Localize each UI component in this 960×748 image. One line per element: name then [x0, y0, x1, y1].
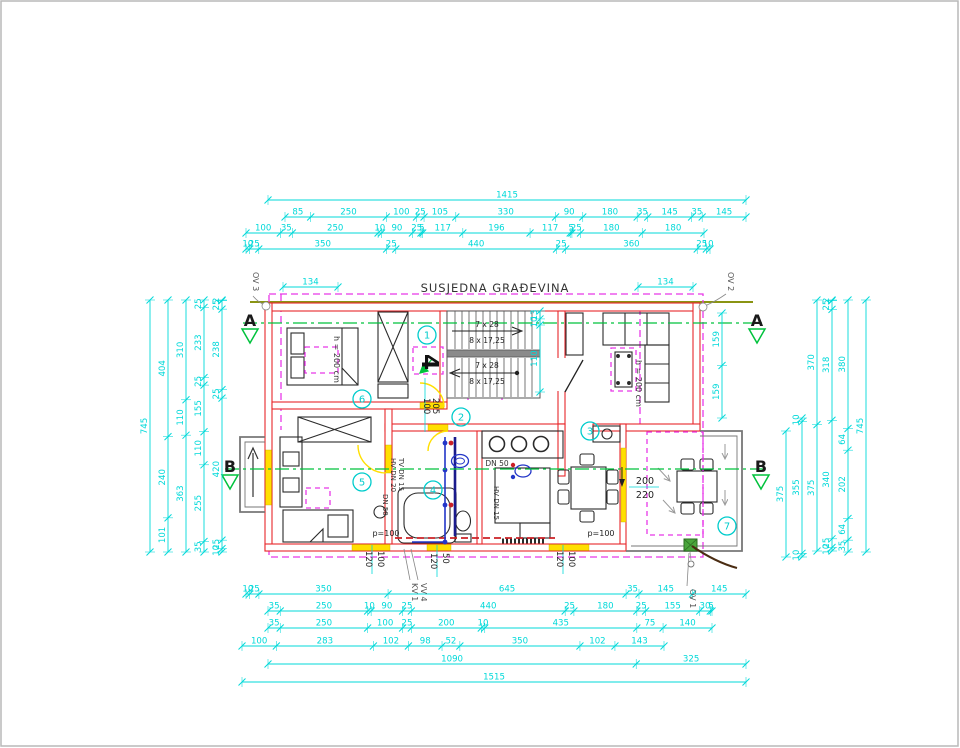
window1-width: 100 — [375, 551, 385, 567]
dim-label: 200 — [438, 619, 454, 629]
dim-label: 255 — [194, 495, 204, 511]
dim-label: 420 — [212, 461, 222, 477]
dim-label: 25 — [564, 602, 575, 612]
dim-label: 340 — [822, 471, 832, 487]
dim-chain-left-3: 310110363 — [176, 297, 191, 556]
dim-label: 102 — [383, 637, 399, 647]
window-right-width: 200 — [636, 476, 654, 487]
dim-label: 64 — [838, 434, 848, 445]
dim-chain-top-total: 1415 — [265, 191, 750, 206]
dim-label: 101 — [158, 527, 168, 543]
dim-label: 145 — [658, 585, 674, 595]
window3-height: 120 — [554, 551, 564, 567]
dim-label: 35 — [838, 541, 848, 552]
dim-label: 145 — [661, 208, 677, 218]
door-opening-living — [557, 358, 566, 391]
tv-cabinet — [566, 313, 583, 355]
dim-chain-top-row-2: 8525010025105330901803514535145 — [282, 208, 750, 223]
dim-chain-right-window: 159159 — [712, 310, 727, 422]
dim-label: 90 — [391, 224, 402, 234]
detail-marker-number: 4 — [416, 354, 442, 370]
room-number-2: 2 — [458, 413, 464, 424]
window-right-height: 220 — [636, 490, 654, 501]
door-leaf-living — [565, 360, 583, 392]
dim-label: 25 — [249, 240, 260, 250]
plumbing — [395, 437, 555, 544]
dim-label: 180 — [597, 602, 613, 612]
pipe-tv-dn15: TV DN 15 — [397, 457, 405, 491]
room-number-3: 3 — [587, 427, 593, 438]
dim-label: 404 — [158, 360, 168, 376]
dim-label: 25 — [212, 388, 222, 399]
dim-label: 75 — [644, 619, 655, 629]
kitchen-sink — [515, 465, 531, 477]
dim-label: 1415 — [496, 191, 518, 201]
room-number-1: 1 — [424, 331, 430, 342]
pipe-dn50-bath: DN 50 — [381, 494, 389, 516]
dim-label: 250 — [316, 619, 332, 629]
vent-label-ov3: OV 3 — [251, 272, 260, 291]
toilet — [456, 511, 471, 531]
dim-label: 330 — [497, 208, 513, 218]
rainwater-drain — [684, 539, 737, 568]
dim-label: 350 — [315, 240, 331, 250]
dim-chain-top-row-3: 100352501090255117196117525180180 — [243, 224, 708, 239]
dim-label: 233 — [194, 334, 204, 350]
dim-chain-right-2: 1035510 — [792, 414, 807, 560]
dim-chain-bottom-row-6: 1515 — [239, 673, 750, 688]
dim-label: 134 — [657, 278, 673, 288]
dim-label: 250 — [316, 602, 332, 612]
dim-chain-bottom-row-5: 1090325 — [265, 655, 750, 670]
window3-width: 100 — [566, 551, 576, 567]
dim-label: 140 — [679, 619, 695, 629]
vent-label-ov1: OV 1 — [688, 589, 697, 608]
door-dim-height: 205 — [430, 398, 440, 414]
dim-label: 90 — [381, 602, 392, 612]
height-note-right: h = 200 cm — [634, 360, 643, 407]
dim-chain-left-1: 745 — [140, 297, 155, 556]
section-marker-b-left: B — [224, 457, 236, 476]
dim-chain-right-3: 370375 — [807, 297, 822, 555]
bed — [287, 328, 358, 385]
dim-label: 196 — [488, 224, 504, 234]
dim-label: 85 — [292, 208, 303, 218]
dim-label: 98 — [420, 637, 431, 647]
dim-label: 159 — [712, 384, 722, 400]
room-number-5: 5 — [359, 478, 365, 489]
dim-chain-bottom-row-4: 1002831029852350102143 — [239, 637, 668, 652]
dim-chain-bottom-row-1: 102535064535145145 — [242, 585, 749, 600]
dim-chain-top-134-left: 134 — [280, 278, 342, 293]
terrace-table — [677, 459, 717, 514]
dim-label: 240 — [158, 469, 168, 485]
dim-label: 25 — [401, 602, 412, 612]
dim-label: 25 — [571, 224, 582, 234]
vent-label-vv4: VV 4 — [419, 583, 428, 602]
dim-label: 155 — [664, 602, 680, 612]
kitchen-counter — [482, 426, 620, 541]
stair-stringer — [447, 350, 540, 357]
height-note-left: h = 200 cm — [332, 336, 341, 383]
dim-label: 100 — [251, 637, 267, 647]
floor-plan-sheet: 1415852501002510533090180351453514510035… — [0, 0, 960, 748]
dim-label: 35 — [194, 541, 204, 552]
dim-label: 35 — [269, 602, 280, 612]
dim-label: 180 — [602, 208, 618, 218]
dim-label: 52 — [445, 637, 456, 647]
dim-label: 238 — [212, 341, 222, 357]
dim-label: 117 — [435, 224, 451, 234]
dim-label: 375 — [807, 480, 817, 496]
dim-label: 350 — [315, 585, 331, 595]
dim-chain-right-6: 745 — [856, 297, 871, 556]
dim-label: 180 — [665, 224, 681, 234]
dim-label: 1090 — [441, 655, 463, 665]
dim-chain-bottom-row-3: 35250100252001043575140 — [265, 619, 716, 634]
dim-chain-right-5: 380642026435 — [838, 297, 853, 556]
dim-label: 90 — [564, 208, 575, 218]
dim-label: 202 — [838, 476, 848, 492]
stair-up-run: 7 x 28 — [475, 320, 499, 329]
dim-chain-left-2: 404240101 — [158, 297, 173, 556]
dim-chain-top-row-4: 102535025440253602510 — [242, 240, 713, 255]
door-dim-width: 100 — [421, 398, 431, 414]
parapet-right: p=100 — [587, 529, 614, 538]
dim-label: 35 — [691, 208, 702, 218]
dim-label: 10 — [703, 240, 714, 250]
dim-label: 145 — [711, 585, 727, 595]
dim-label: 325 — [683, 655, 699, 665]
section-marker-b-right: B — [755, 457, 767, 476]
dim-label: 745 — [856, 418, 866, 434]
section-marker-a-left: A — [244, 311, 257, 330]
dim-label: 1515 — [483, 673, 505, 683]
pipe-hv-dn20: HV DN 20 — [389, 458, 397, 492]
dim-label: 25 — [401, 619, 412, 629]
dim-label: 360 — [623, 240, 639, 250]
dim-chain-bottom-row-2: 352501090254402518025155305 — [265, 602, 716, 617]
dim-label: 370 — [807, 354, 817, 370]
room-number-7: 7 — [724, 522, 730, 533]
dim-label: 435 — [553, 619, 569, 629]
stair-down-run: 7 x 28 — [475, 361, 499, 370]
dining-table — [558, 454, 618, 522]
dim-label: 25 — [212, 299, 222, 310]
dim-label: 64 — [838, 524, 848, 535]
dim-label: 10 — [530, 316, 540, 327]
dim-label: 10 — [364, 602, 375, 612]
dim-label: 35 — [627, 585, 638, 595]
dim-label: 100 — [393, 208, 409, 218]
section-marker-a-right-triangle — [749, 329, 765, 343]
coffee-table — [615, 352, 632, 387]
dim-label: 159 — [712, 331, 722, 347]
dim-label: 355 — [792, 479, 802, 495]
dim-label: 250 — [327, 224, 343, 234]
dim-label: 745 — [140, 418, 150, 434]
floor-plan-drawing: 1415852501002510533090180351453514510035… — [0, 0, 960, 748]
wardrobe-room5 — [298, 417, 371, 442]
vent-label-kv1: KV 1 — [410, 583, 419, 601]
dim-label: 100 — [255, 224, 271, 234]
entry-arrow — [248, 448, 258, 497]
dim-label: 25 — [386, 240, 397, 250]
cold-water-pipe — [412, 437, 445, 542]
dim-label: 35 — [281, 224, 292, 234]
parapet-left: p=100 — [372, 529, 399, 538]
dim-label: 35 — [637, 208, 648, 218]
dim-label: 10 — [478, 619, 489, 629]
section-marker-b-right-triangle — [753, 475, 769, 489]
dim-label: 375 — [776, 486, 786, 502]
room-number-6: 6 — [359, 395, 365, 406]
dim-chain-top-134-right: 134 — [635, 278, 697, 293]
dim-chain-right-4: 2253183402510 — [822, 297, 837, 555]
dim-label: 105 — [432, 208, 448, 218]
dim-label: 143 — [631, 637, 647, 647]
dim-label: 283 — [317, 637, 333, 647]
dim-label: 250 — [340, 208, 356, 218]
dimension-layer: 1415852501002510533090180351453514510035… — [140, 191, 871, 688]
vent-label-ov2: OV 2 — [726, 272, 735, 291]
dim-label: 25 — [822, 300, 832, 311]
dim-label: 110 — [194, 440, 204, 456]
dim-label: 10 — [374, 224, 385, 234]
dim-chain-right-1: 375 — [776, 428, 791, 561]
window2-width: 50 — [440, 553, 450, 564]
pipe-hv-dn15: HV DN 15 — [492, 486, 500, 520]
dim-chain-left-5: 225238254202510 — [212, 297, 227, 556]
dim-label: 350 — [512, 637, 528, 647]
dim-label: 155 — [194, 400, 204, 416]
dim-label: 440 — [468, 240, 484, 250]
room-number-4: 4 — [430, 486, 436, 497]
cabinet-room5 — [283, 510, 353, 542]
dim-label: 100 — [377, 619, 393, 629]
dim-label: 145 — [716, 208, 732, 218]
stair-up-rise: 8 x 17,25 — [469, 336, 505, 345]
pipe-dn50-kitchen: DN 50 — [485, 459, 509, 468]
dim-label: 102 — [589, 637, 605, 647]
section-marker-b-left-triangle — [222, 475, 238, 489]
section-marker-a-left-triangle — [242, 329, 258, 343]
dim-chain-left-4: 252332515511025535 — [194, 297, 209, 556]
dim-label: 35 — [269, 619, 280, 629]
dim-label: 363 — [176, 485, 186, 501]
downspout-curve — [692, 546, 737, 568]
dim-label: 310 — [176, 342, 186, 358]
stair-down-rise: 8 x 17,25 — [469, 377, 505, 386]
desk — [280, 437, 302, 507]
dim-label: 380 — [838, 356, 848, 372]
dim-label: 25 — [249, 585, 260, 595]
dim-label: 25 — [636, 602, 647, 612]
window1-height: 120 — [363, 551, 373, 567]
neighbour-building-label: SUSJEDNA GRAĐEVINA — [421, 281, 570, 295]
dim-label: 110 — [530, 350, 540, 366]
wardrobe-bedroom — [378, 312, 408, 398]
dim-label: 440 — [480, 602, 496, 612]
window2-height: 120 — [428, 553, 438, 569]
dim-label: 110 — [176, 409, 186, 425]
dim-label: 645 — [499, 585, 515, 595]
section-marker-a-right: A — [751, 311, 764, 330]
dim-label: 25 — [556, 240, 567, 250]
dim-label: 318 — [822, 357, 832, 373]
dim-label: 180 — [603, 224, 619, 234]
dim-label: 134 — [302, 278, 318, 288]
dim-label: 117 — [542, 224, 558, 234]
